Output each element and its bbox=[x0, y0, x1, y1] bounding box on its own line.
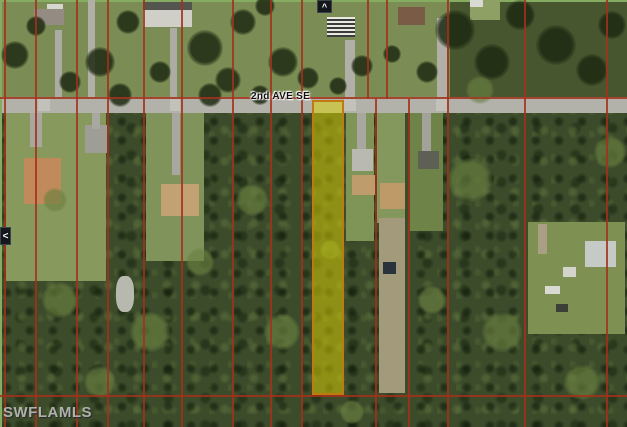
terrain-patch bbox=[172, 113, 180, 175]
terrain-patch bbox=[116, 276, 134, 312]
building bbox=[327, 17, 355, 37]
tree-canopy bbox=[482, 312, 522, 352]
building bbox=[398, 7, 425, 25]
parcel-boundary-line bbox=[232, 0, 234, 427]
tree-canopy bbox=[43, 188, 67, 212]
tree-canopy bbox=[198, 83, 222, 107]
terrain-patch bbox=[344, 99, 356, 111]
parcel-boundary-line bbox=[524, 0, 526, 427]
tree-canopy bbox=[536, 25, 576, 65]
tree-canopy bbox=[351, 55, 373, 77]
building bbox=[352, 175, 375, 195]
tree-canopy bbox=[474, 44, 510, 80]
chevron-up-icon: ^ bbox=[322, 3, 327, 12]
building bbox=[143, 10, 192, 27]
map-canvas[interactable]: 2nd AVE SE SWFLAMLS ^ < bbox=[0, 0, 627, 427]
tree-canopy bbox=[416, 61, 438, 83]
building bbox=[545, 286, 560, 294]
tree-canopy bbox=[448, 158, 492, 202]
parcel-boundary-line bbox=[0, 97, 627, 99]
terrain-patch bbox=[436, 99, 447, 111]
building bbox=[556, 304, 568, 312]
terrain-patch bbox=[92, 113, 100, 129]
terrain-patch bbox=[379, 218, 405, 393]
building bbox=[470, 0, 483, 7]
terrain-patch bbox=[38, 99, 50, 111]
tree-canopy bbox=[340, 400, 364, 424]
parcel-boundary-line bbox=[447, 0, 449, 427]
pan-left-button[interactable]: < bbox=[0, 227, 11, 245]
tree-canopy bbox=[84, 366, 116, 398]
parcel-boundary-line bbox=[375, 99, 377, 427]
parcel-boundary-line bbox=[35, 0, 37, 427]
chevron-left-icon: < bbox=[3, 232, 9, 242]
terrain-patch bbox=[85, 125, 107, 153]
parcel-boundary-line bbox=[0, 395, 627, 397]
terrain-patch bbox=[538, 224, 547, 254]
pan-up-button[interactable]: ^ bbox=[317, 0, 332, 13]
tree-canopy bbox=[576, 54, 608, 86]
parcel-boundary-line bbox=[107, 0, 109, 427]
parcel-boundary-line bbox=[181, 0, 183, 427]
parcel-boundary-line bbox=[270, 0, 272, 427]
tree-canopy bbox=[130, 312, 170, 352]
tree-canopy bbox=[505, 0, 535, 30]
building bbox=[352, 149, 373, 171]
tree-canopy bbox=[42, 282, 78, 318]
highlighted-parcel[interactable] bbox=[312, 100, 344, 395]
tree-canopy bbox=[149, 61, 171, 83]
tree-canopy bbox=[85, 47, 115, 77]
terrain-patch bbox=[170, 28, 177, 97]
tree-canopy bbox=[108, 83, 132, 107]
parcel-boundary-line bbox=[606, 0, 608, 427]
tree-canopy bbox=[594, 136, 626, 168]
terrain-patch bbox=[170, 99, 180, 111]
terrain-patch bbox=[0, 0, 2, 427]
terrain-patch bbox=[422, 113, 431, 155]
building bbox=[563, 267, 576, 277]
tree-canopy bbox=[186, 248, 214, 276]
tree-canopy bbox=[418, 286, 446, 314]
parcel-boundary-line bbox=[143, 0, 145, 427]
building bbox=[418, 151, 439, 169]
building bbox=[380, 183, 405, 209]
mls-watermark: SWFLAMLS bbox=[3, 404, 92, 421]
tree-canopy bbox=[598, 11, 626, 39]
parcel-boundary-line bbox=[386, 0, 388, 99]
parcel-boundary-line bbox=[367, 0, 369, 99]
parcel-boundary-line bbox=[4, 0, 6, 427]
tree-canopy bbox=[466, 76, 494, 104]
tree-canopy bbox=[116, 10, 140, 34]
building bbox=[383, 262, 396, 274]
terrain-patch bbox=[357, 113, 366, 151]
building bbox=[585, 241, 616, 267]
street-label: 2nd AVE SE bbox=[251, 91, 310, 102]
tree-canopy bbox=[236, 184, 268, 216]
parcel-boundary-line bbox=[76, 0, 78, 427]
tree-canopy bbox=[329, 77, 347, 95]
tree-canopy bbox=[268, 47, 298, 77]
building bbox=[161, 184, 199, 216]
tree-canopy bbox=[435, 10, 475, 50]
parcel-boundary-line bbox=[408, 99, 410, 427]
parcel-boundary-line bbox=[301, 0, 303, 427]
tree-canopy bbox=[187, 30, 223, 66]
